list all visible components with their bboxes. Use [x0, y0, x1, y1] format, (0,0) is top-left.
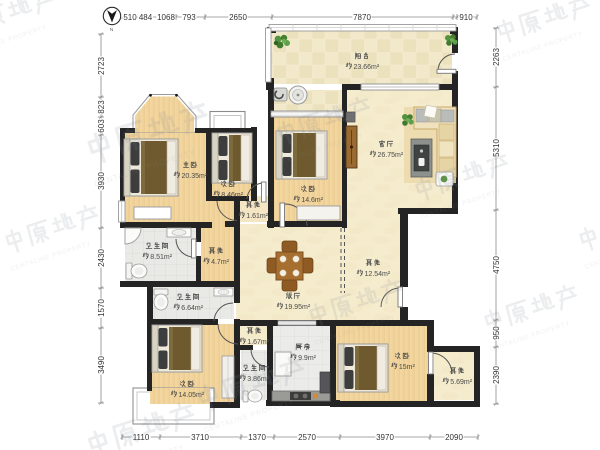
- svg-text:23.66m²: 23.66m²: [354, 64, 380, 71]
- svg-text:15m²: 15m²: [399, 364, 416, 371]
- svg-text:1068: 1068: [157, 13, 175, 22]
- svg-text:2390: 2390: [492, 366, 501, 384]
- svg-text:5310: 5310: [492, 139, 501, 157]
- svg-text:3710: 3710: [191, 433, 209, 442]
- svg-text:19.95m²: 19.95m²: [285, 304, 311, 311]
- svg-text:603: 603: [97, 119, 106, 133]
- svg-text:7870: 7870: [353, 13, 371, 22]
- svg-text:14.6m²: 14.6m²: [301, 197, 323, 204]
- svg-text:2090: 2090: [445, 433, 463, 442]
- svg-text:8.51m²: 8.51m²: [150, 254, 172, 261]
- svg-text:3490: 3490: [97, 356, 106, 374]
- svg-text:1370: 1370: [248, 433, 266, 442]
- svg-text:3970: 3970: [376, 433, 394, 442]
- svg-text:510: 510: [123, 13, 137, 22]
- svg-text:2650: 2650: [229, 13, 247, 22]
- svg-text:910: 910: [459, 13, 473, 22]
- svg-text:2430: 2430: [97, 249, 106, 267]
- svg-text:2723: 2723: [97, 57, 106, 75]
- svg-text:N: N: [110, 27, 113, 32]
- svg-text:1.67m²: 1.67m²: [247, 339, 269, 346]
- svg-text:2263: 2263: [492, 48, 501, 66]
- svg-text:2570: 2570: [298, 433, 316, 442]
- svg-text:6.64m²: 6.64m²: [181, 305, 203, 312]
- svg-text:1570: 1570: [97, 299, 106, 317]
- svg-text:12.54m²: 12.54m²: [365, 271, 391, 278]
- svg-text:1.61m²: 1.61m²: [246, 213, 268, 220]
- svg-text:4.7m²: 4.7m²: [211, 259, 230, 266]
- svg-text:4750: 4750: [492, 256, 501, 274]
- svg-text:26.75m²: 26.75m²: [378, 152, 404, 159]
- svg-text:20.35m²: 20.35m²: [182, 173, 208, 180]
- svg-text:823: 823: [97, 100, 106, 114]
- svg-text:793: 793: [182, 13, 196, 22]
- svg-text:8.46m²: 8.46m²: [221, 192, 243, 199]
- svg-text:484: 484: [139, 13, 153, 22]
- svg-text:5.69m²: 5.69m²: [450, 379, 472, 386]
